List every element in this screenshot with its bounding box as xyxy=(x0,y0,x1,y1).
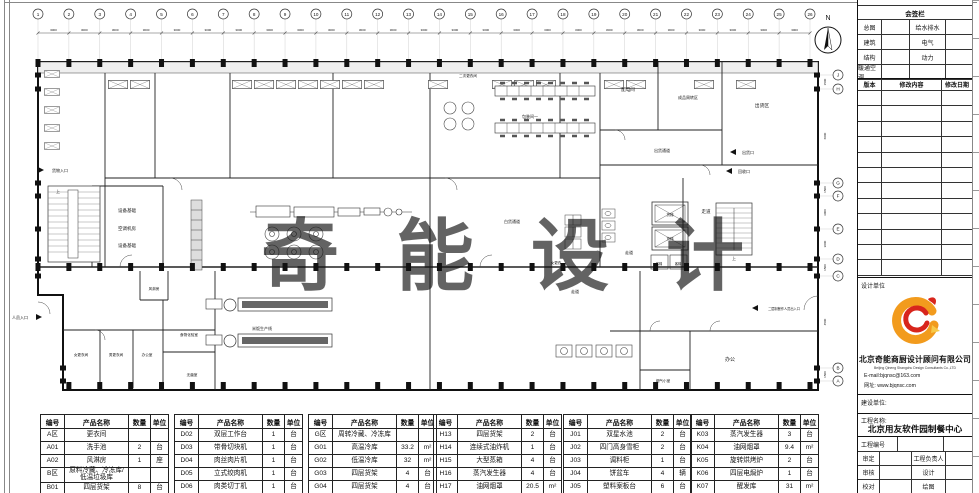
table-header: 数量 xyxy=(129,415,151,429)
table-cell: 醒发库 xyxy=(715,481,779,493)
column-marker xyxy=(283,382,288,390)
grid-dimension: 3000 xyxy=(174,28,181,32)
table-cell: K04 xyxy=(691,442,715,455)
packing-tables xyxy=(495,83,595,136)
column-marker xyxy=(36,59,41,67)
table-cell: G04 xyxy=(309,481,333,493)
grid-dimension: 3000 xyxy=(143,28,150,32)
table-cell: D06 xyxy=(175,481,199,493)
revision-cell xyxy=(858,106,882,121)
revision-cell xyxy=(882,91,942,106)
column-marker xyxy=(622,382,627,390)
column-marker xyxy=(530,59,535,67)
table-cell: 台 xyxy=(544,442,562,455)
column-marker xyxy=(468,382,473,390)
revision-cell xyxy=(882,245,942,260)
revision-cell xyxy=(858,260,882,275)
grid-dimension: 1500 xyxy=(823,371,827,378)
table-cell: 油网烟罩 xyxy=(458,481,522,493)
revision-cell xyxy=(942,106,972,121)
table-cell: 2 xyxy=(652,442,674,455)
table-cell: G03 xyxy=(309,468,333,481)
column-marker xyxy=(530,263,535,271)
column-marker xyxy=(808,59,813,67)
grid-dimension: 3000 xyxy=(637,28,644,32)
table-cell: 原料冷藏、冷冻库/低温垃圾库 xyxy=(65,468,129,483)
sign-label: 结构 xyxy=(858,50,882,65)
table-row: D02双层工作台1台 xyxy=(175,429,303,442)
table-cell: 4 xyxy=(397,481,419,493)
sign-panel: 会签栏 总图给水排水建筑电气结构动力暖通空调 xyxy=(858,5,972,80)
grid-dimension: 3000 xyxy=(760,28,767,32)
grid-dimension: 3000 xyxy=(204,28,211,32)
grid-row-label: E xyxy=(836,227,839,232)
table-header: 单位 xyxy=(801,415,819,429)
table-cell: 台 xyxy=(544,455,562,468)
table-row: K03蒸汽发生器3台 xyxy=(691,429,819,442)
grid-dimension: 3000 xyxy=(390,28,397,32)
table-row: J02四门高身雪柜2台 xyxy=(564,442,692,455)
table-cell: 台 xyxy=(674,455,692,468)
watermark-text: 奇 xyxy=(261,212,339,300)
table-cell: 辆 xyxy=(674,468,692,481)
column-marker xyxy=(591,382,596,390)
grid-dimension: 3000 xyxy=(606,28,613,32)
table-cell: 台 xyxy=(151,442,169,455)
column-marker xyxy=(591,263,596,271)
column-marker xyxy=(375,263,380,271)
sign-value xyxy=(946,35,972,50)
revision-cell xyxy=(882,168,942,183)
column-marker xyxy=(684,382,689,390)
room-label: 办公室 xyxy=(142,352,153,357)
grid-col-label: 13 xyxy=(406,12,412,17)
table-cell: B01 xyxy=(41,482,65,493)
grid-col-label: 8 xyxy=(253,12,256,17)
grid-dimension: 3000 xyxy=(50,28,57,32)
table-cell: 33.2 xyxy=(397,442,419,455)
column-marker xyxy=(437,382,442,390)
table-cell: 台 xyxy=(285,442,303,455)
table-cell: G02 xyxy=(309,455,333,468)
table-row: D06肉类切丁机1台 xyxy=(175,481,303,493)
table-cell: 1 xyxy=(263,429,285,442)
table-cell: 32 xyxy=(397,455,419,468)
grid-dimension: 3000 xyxy=(328,28,335,32)
table-cell: 低温冷库 xyxy=(333,455,397,468)
table-cell: 1 xyxy=(263,442,285,455)
column-marker xyxy=(622,59,627,67)
revision-cell xyxy=(858,214,882,229)
table-row: A02风淋房1座 xyxy=(41,455,169,468)
client-panel: 建设单位: xyxy=(858,395,972,414)
column-marker xyxy=(560,382,565,390)
table-cell: A01 xyxy=(41,442,65,455)
table-header: 编号 xyxy=(564,415,588,429)
room-label: 女更衣 xyxy=(551,260,562,265)
column-marker xyxy=(437,59,442,67)
table-header: 产品名称 xyxy=(715,415,779,429)
column-marker xyxy=(808,263,813,271)
table-cell: 风淋房 xyxy=(65,455,129,468)
revision-cell xyxy=(942,153,972,168)
table-cell: 连续式油炸机 xyxy=(458,442,522,455)
column-marker xyxy=(499,263,504,271)
design-unit-panel: 设计单位 北京奇能商厨设计顾问有限公司 Beijing Qineng Shang… xyxy=(858,277,972,395)
table-cell: K07 xyxy=(691,481,715,493)
column-marker xyxy=(684,59,689,67)
column-marker xyxy=(35,73,41,78)
grid-col-label: 14 xyxy=(437,12,443,17)
column-marker xyxy=(684,263,689,271)
company-name-cn: 北京奇能商厨设计顾问有限公司 xyxy=(858,354,972,365)
table-cell: 四层货架 xyxy=(333,468,397,481)
table-row: J04饼盆车4辆 xyxy=(564,468,692,481)
table-row: K05旋转烘烤炉2台 xyxy=(691,455,819,468)
table-header: 产品名称 xyxy=(65,415,129,429)
column-marker xyxy=(653,59,658,67)
grid-row-label: B xyxy=(836,366,839,371)
revision-header: 版本 xyxy=(858,78,882,91)
table-cell: J03 xyxy=(564,455,588,468)
revision-cell xyxy=(942,214,972,229)
revision-cell xyxy=(858,168,882,183)
table-cell: K05 xyxy=(691,455,715,468)
room-label: 办公 xyxy=(725,356,735,363)
table-cell: 台 xyxy=(801,429,819,442)
table-cell: m² xyxy=(801,442,819,455)
room-label: 女更衣间 xyxy=(74,352,89,357)
grid-col-label: 11 xyxy=(344,12,349,17)
grid-dimension: 1500 xyxy=(823,186,827,193)
table-header: 产品名称 xyxy=(458,415,522,429)
column-marker xyxy=(97,263,102,271)
revision-cell xyxy=(858,122,882,137)
room-label: 回收口 xyxy=(738,168,750,174)
sign-value xyxy=(882,50,910,65)
room-label: 食物化验室 xyxy=(180,332,198,337)
table-header: 数量 xyxy=(652,415,674,429)
table-cell: m² xyxy=(544,481,562,493)
column-marker xyxy=(159,263,164,271)
table-cell: 4 xyxy=(522,468,544,481)
table-cell: 塑料案板台 xyxy=(588,481,652,493)
column-marker xyxy=(814,379,820,384)
revision-header: 修改日期 xyxy=(942,78,972,91)
table-cell: 四层货架 xyxy=(458,429,522,442)
table-cell: 1 xyxy=(263,481,285,493)
table-cell: 台 xyxy=(801,455,819,468)
client-label: 建设单位: xyxy=(861,398,887,407)
table-cell: 台 xyxy=(285,481,303,493)
revision-cell xyxy=(882,183,942,198)
column-marker xyxy=(344,263,349,271)
room-label: 无菌室 xyxy=(187,372,198,377)
table-row: H16蒸汽发生器4台 xyxy=(434,468,562,481)
table-cell xyxy=(397,429,419,442)
table-cell: 台 xyxy=(544,468,562,481)
column-marker xyxy=(66,382,71,390)
table-cell: 座 xyxy=(151,455,169,468)
column-marker xyxy=(814,73,820,78)
table-cell: A02 xyxy=(41,455,65,468)
column-marker xyxy=(35,87,41,92)
sign-value xyxy=(946,20,972,35)
table-cell: 1 xyxy=(263,468,285,481)
project-name: 北京用友软件园制餐中心 xyxy=(858,423,972,435)
column-marker xyxy=(221,263,226,271)
table-row: D03带骨切块机1台 xyxy=(175,442,303,455)
room-label: 客梯 xyxy=(656,261,663,266)
table-header: 编号 xyxy=(309,415,333,429)
room-label: 人员入口 xyxy=(12,314,28,320)
field-label: 工程负责人 xyxy=(912,452,946,466)
table-cell: D03 xyxy=(175,442,199,455)
table-cell: 更衣间 xyxy=(65,429,129,442)
table-cell: 蒸汽发生器 xyxy=(458,468,522,481)
table-cell: D02 xyxy=(175,429,199,442)
project-no-value xyxy=(898,437,944,452)
revision-cell xyxy=(858,137,882,152)
table-row: A区更衣间 xyxy=(41,429,169,442)
table-cell: 1 xyxy=(652,455,674,468)
table-header: 编号 xyxy=(691,415,715,429)
room-label: 米饭生产线 xyxy=(252,325,272,331)
revision-cell xyxy=(858,199,882,214)
table-cell: A区 xyxy=(41,429,65,442)
room-label: N xyxy=(825,15,830,22)
grid-col-label: 3 xyxy=(98,12,101,17)
staircase-west xyxy=(48,186,100,262)
sign-label: 电气 xyxy=(910,35,946,50)
table-row: K07醒发库31m² xyxy=(691,481,819,493)
column-marker xyxy=(66,59,71,67)
table-row: G03四层货架4台 xyxy=(309,468,437,481)
grid-col-label: 6 xyxy=(191,12,194,17)
table-cell: 台 xyxy=(674,442,692,455)
column-marker xyxy=(283,59,288,67)
grid-dimension: 3000 xyxy=(729,28,736,32)
table-cell: 2 xyxy=(522,429,544,442)
grid-col-label: 15 xyxy=(468,12,474,17)
column-marker xyxy=(190,59,195,67)
equipment-table-d: 编号产品名称数量单位D02双层工作台1台D03带骨切块机1台D04肉丝肉片机1台… xyxy=(174,414,303,493)
room-label: 烟气小室 xyxy=(656,378,671,383)
company-email: E-mail:bjqnsc@163.com xyxy=(864,373,920,379)
field-label: 审定 xyxy=(858,452,880,466)
field-label: 审核 xyxy=(858,466,880,480)
grid-col-label: 7 xyxy=(222,12,225,17)
table-row: A01洗手池2台 xyxy=(41,442,169,455)
grid-col-label: 25 xyxy=(777,12,783,17)
column-marker xyxy=(252,59,257,67)
table-cell: 9.4 xyxy=(779,442,801,455)
grid-dimension: 3000 xyxy=(81,28,88,32)
design-unit-label: 设计单位 xyxy=(861,281,885,290)
column-marker xyxy=(715,382,720,390)
table-cell: 蒸汽发生器 xyxy=(715,429,779,442)
column-marker xyxy=(128,263,133,271)
table-cell: 四门高身雪柜 xyxy=(588,442,652,455)
column-marker xyxy=(35,257,41,262)
table-cell xyxy=(151,429,169,442)
table-cell: 1 xyxy=(263,455,285,468)
table-cell: 8 xyxy=(129,482,151,493)
field-value xyxy=(880,480,912,493)
table-cell: D05 xyxy=(175,468,199,481)
table-header: 编号 xyxy=(434,415,458,429)
table-cell: K06 xyxy=(691,468,715,481)
table-header: 编号 xyxy=(41,415,65,429)
table-cell: 四层电焗炉 xyxy=(715,468,779,481)
table-row: B区原料冷藏、冷冻库/低温垃圾库 xyxy=(41,468,169,483)
grid-col-label: 10 xyxy=(313,12,319,17)
table-cell: 2 xyxy=(779,455,801,468)
revision-cell xyxy=(882,137,942,152)
drawing-sheet: 奇能设计130002300033000430005300063000730008… xyxy=(0,0,979,493)
table-cell: H17 xyxy=(434,481,458,493)
revision-cell xyxy=(858,245,882,260)
table-cell: 四层货架 xyxy=(65,482,129,493)
room-label: 货梯 xyxy=(666,236,674,241)
revision-cell xyxy=(882,153,942,168)
sign-label: 总图 xyxy=(858,20,882,35)
column-marker xyxy=(499,59,504,67)
field-value xyxy=(946,452,972,466)
table-cell: 双星水池 xyxy=(588,429,652,442)
grid-dimension: 3000 xyxy=(112,28,119,32)
revision-cell xyxy=(882,260,942,275)
table-header: 单位 xyxy=(151,415,169,429)
column-marker xyxy=(221,382,226,390)
table-cell: 调料柜 xyxy=(588,455,652,468)
grid-dimension: 3000 xyxy=(359,28,366,32)
room-label: 货物入口 xyxy=(52,167,68,173)
room-label: 出货口 xyxy=(742,149,754,155)
table-row: G区周转冷藏、冷冻库 xyxy=(309,429,437,442)
table-row: J03调料柜1台 xyxy=(564,455,692,468)
column-marker xyxy=(406,59,411,67)
column-marker xyxy=(808,382,813,390)
table-cell: J01 xyxy=(564,429,588,442)
sign-value xyxy=(882,35,910,50)
revision-cell xyxy=(858,153,882,168)
field-label: 设计 xyxy=(912,466,946,480)
sign-label: 建筑 xyxy=(858,35,882,50)
grid-dimension: 3000 xyxy=(575,28,582,32)
grid-dimension: 3000 xyxy=(668,28,675,32)
column-marker xyxy=(437,263,442,271)
table-cell: m² xyxy=(801,481,819,493)
grid-row-label: F xyxy=(837,194,840,199)
equipment-table-j: 编号产品名称数量单位J01双星水池2台J02四门高身雪柜2台J03调料柜1台J0… xyxy=(563,414,692,493)
column-marker xyxy=(814,181,820,186)
sign-panel-title: 会签栏 xyxy=(858,5,972,20)
grid-dimension: 1500 xyxy=(823,264,827,271)
room-label: 客梯 xyxy=(675,261,682,266)
table-cell: 肉丝肉片机 xyxy=(199,455,263,468)
table-cell: 台 xyxy=(674,481,692,493)
table-cell xyxy=(151,468,169,483)
table-row: G04四层货架4台 xyxy=(309,481,437,493)
column-marker xyxy=(746,382,751,390)
grid-col-label: 1 xyxy=(37,12,40,17)
column-marker xyxy=(777,263,782,271)
table-row: H13四层货架2台 xyxy=(434,429,562,442)
table-cell: 大型蒸箱 xyxy=(458,455,522,468)
table-cell: 台 xyxy=(285,455,303,468)
table-cell: 台 xyxy=(285,429,303,442)
project-no-extra xyxy=(944,437,972,452)
table-row: B01四层货架8台 xyxy=(41,482,169,493)
column-marker xyxy=(313,59,318,67)
table-cell: 1 xyxy=(129,455,151,468)
grid-dimension: 3000 xyxy=(823,240,827,247)
north-compass-icon xyxy=(815,27,841,53)
grid-col-label: 21 xyxy=(653,12,659,17)
grid-col-label: 20 xyxy=(622,12,628,17)
table-cell: 饼盆车 xyxy=(588,468,652,481)
column-marker xyxy=(406,263,411,271)
room-label: 货梯 xyxy=(666,212,674,217)
column-marker xyxy=(36,263,41,271)
project-no-label: 工程编号 xyxy=(858,437,898,452)
grid-col-label: 18 xyxy=(560,12,566,17)
column-marker xyxy=(344,59,349,67)
table-header: 产品名称 xyxy=(333,415,397,429)
column-marker xyxy=(814,194,820,199)
worktables-row xyxy=(44,71,755,150)
floor-plan: 奇能设计130002300033000430005300063000730008… xyxy=(0,0,857,412)
table-cell: D04 xyxy=(175,455,199,468)
table-cell: B区 xyxy=(41,468,65,483)
table-row: H14连续式油炸机1台 xyxy=(434,442,562,455)
table-cell: J02 xyxy=(564,442,588,455)
table-cell: 肉类切丁机 xyxy=(199,481,263,493)
table-cell: 31 xyxy=(779,481,801,493)
column-marker xyxy=(252,263,257,271)
grid-col-label: 9 xyxy=(284,12,287,17)
table-cell: 4 xyxy=(652,468,674,481)
table-row: D04肉丝肉片机1台 xyxy=(175,455,303,468)
column-marker xyxy=(313,263,318,271)
table-row: G01高温冷库33.2m² xyxy=(309,442,437,455)
room-label: 出货区 xyxy=(755,102,770,109)
watermark-text: 设 xyxy=(531,212,609,300)
column-marker xyxy=(814,87,820,92)
grid-col-label: 4 xyxy=(129,12,132,17)
column-marker xyxy=(375,382,380,390)
table-header: 数量 xyxy=(779,415,801,429)
table-cell: 台 xyxy=(544,429,562,442)
column-marker xyxy=(35,194,41,199)
room-label: 二层制餐作人员出入口 xyxy=(768,306,800,311)
column-marker xyxy=(128,382,133,390)
revision-cell xyxy=(882,214,942,229)
table-header: 产品名称 xyxy=(199,415,263,429)
grid-col-label: 12 xyxy=(375,12,381,17)
column-marker xyxy=(313,382,318,390)
field-label: 绘图 xyxy=(912,480,946,493)
revision-cell xyxy=(942,137,972,152)
revision-panel: 版本修改内容修改日期 xyxy=(858,78,972,276)
sheet-binding-strip xyxy=(972,0,979,493)
table-cell: 2 xyxy=(129,442,151,455)
column-marker xyxy=(35,181,41,186)
table-row: K06四层电焗炉1台 xyxy=(691,468,819,481)
grid-dimension: 1500 xyxy=(823,78,827,85)
grid-col-label: 26 xyxy=(807,12,813,17)
